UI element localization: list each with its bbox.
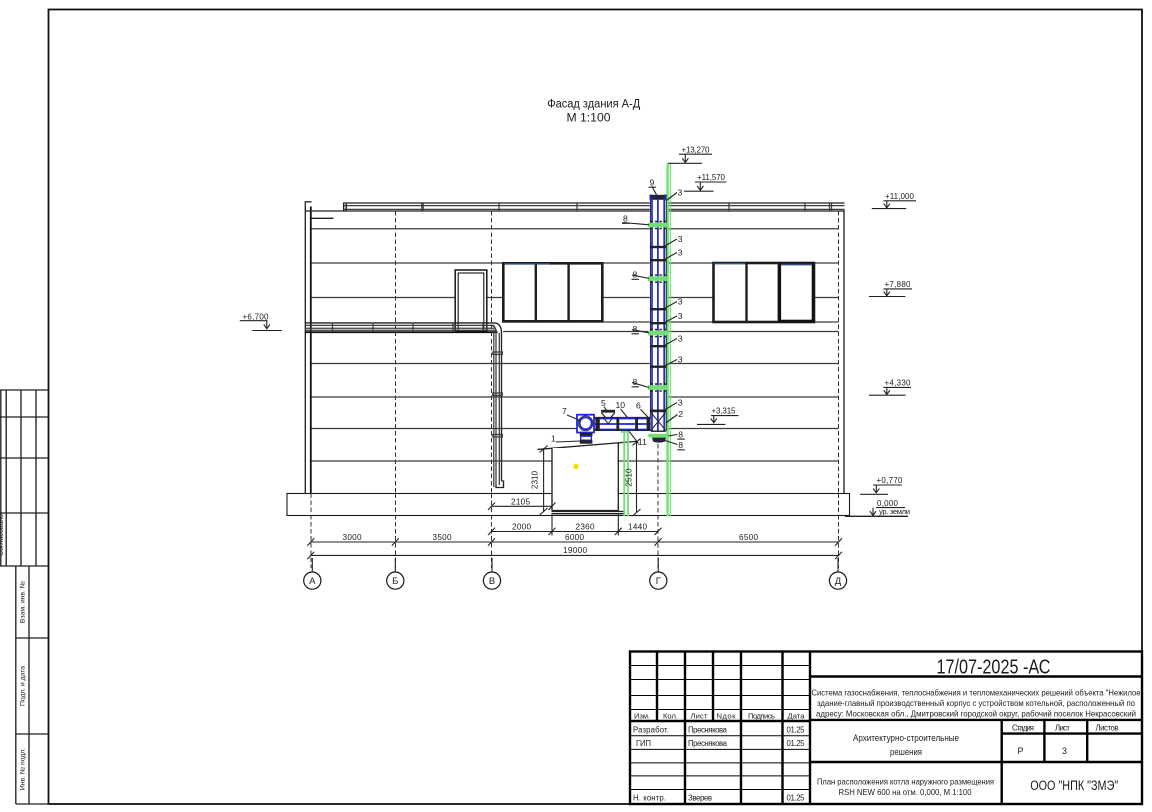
- svg-text:Листов: Листов: [1096, 724, 1119, 733]
- svg-text:Зверев: Зверев: [688, 794, 712, 803]
- svg-text:5: 5: [601, 398, 606, 408]
- svg-text:М 1:100: М 1:100: [567, 113, 611, 125]
- svg-text:3: 3: [678, 311, 683, 321]
- svg-text:Преснякова: Преснякова: [688, 739, 728, 748]
- svg-text:1440: 1440: [628, 523, 647, 532]
- svg-text:8: 8: [633, 324, 638, 334]
- svg-text:01.25: 01.25: [787, 739, 806, 748]
- svg-text:01.25: 01.25: [787, 726, 806, 735]
- svg-text:Н. контр.: Н. контр.: [633, 794, 666, 803]
- svg-text:Подпись: Подпись: [748, 712, 775, 721]
- svg-text:01.25: 01.25: [787, 794, 806, 803]
- svg-text:9: 9: [650, 178, 655, 188]
- svg-text:8: 8: [633, 377, 638, 387]
- svg-text:Архитектурно-строительные: Архитектурно-строительные: [853, 733, 959, 743]
- svg-text:Фасад здания А-Д: Фасад здания А-Д: [547, 99, 640, 111]
- svg-text:3: 3: [678, 334, 683, 344]
- svg-text:+11,000: +11,000: [885, 192, 915, 201]
- svg-text:Дата: Дата: [788, 712, 806, 721]
- svg-text:Лист: Лист: [691, 712, 709, 721]
- svg-text:8: 8: [678, 429, 683, 439]
- svg-text:Р: Р: [1017, 746, 1023, 756]
- svg-text:Согласовано: Согласовано: [0, 514, 5, 556]
- svg-text:Изм.: Изм.: [634, 712, 650, 721]
- svg-text:3: 3: [678, 355, 683, 365]
- svg-text:Б: Б: [392, 576, 398, 587]
- svg-text:Nдок: Nдок: [717, 712, 737, 721]
- svg-text:8: 8: [623, 214, 628, 224]
- svg-text:3: 3: [678, 188, 683, 198]
- svg-text:+3,315: +3,315: [712, 407, 737, 416]
- svg-text:Подп. и дата: Подп. и дата: [20, 666, 27, 706]
- svg-text:6500: 6500: [739, 533, 758, 542]
- svg-text:В: В: [489, 576, 495, 587]
- svg-text:+4,330: +4,330: [885, 378, 912, 387]
- svg-text:+0,770: +0,770: [877, 476, 904, 485]
- svg-text:ГИП: ГИП: [636, 739, 651, 748]
- svg-text:Инв. № подл.: Инв. № подл.: [20, 748, 27, 790]
- svg-text:ООО "НПК "ЗМЭ": ООО "НПК "ЗМЭ": [1030, 778, 1118, 793]
- svg-text:3: 3: [678, 234, 683, 244]
- svg-text:7: 7: [562, 406, 567, 416]
- svg-text:Кол.: Кол.: [663, 712, 678, 721]
- svg-text:решения: решения: [890, 747, 922, 757]
- svg-text:2360: 2360: [576, 523, 595, 532]
- svg-text:3: 3: [678, 248, 683, 258]
- svg-text:здание-главный производственны: здание-главный производственный корпус с…: [817, 698, 1135, 708]
- svg-text:+11,570: +11,570: [697, 173, 726, 182]
- svg-text:11: 11: [638, 437, 647, 447]
- svg-text:2000: 2000: [512, 523, 531, 532]
- svg-text:17/07-2025 -АС: 17/07-2025 -АС: [937, 656, 1051, 678]
- svg-text:Г: Г: [656, 576, 661, 587]
- svg-text:Лист: Лист: [1055, 724, 1070, 733]
- svg-text:2510: 2510: [625, 468, 634, 487]
- svg-text:3000: 3000: [343, 533, 362, 542]
- svg-text:2105: 2105: [511, 498, 530, 507]
- svg-text:Система газоснабжения, теплосн: Система газоснабжения, теплоснабжения и …: [812, 687, 1141, 697]
- svg-text:6: 6: [636, 400, 641, 410]
- svg-text:3: 3: [1062, 746, 1067, 756]
- svg-text:6000: 6000: [565, 533, 584, 542]
- svg-text:10: 10: [616, 400, 626, 410]
- svg-text:2310: 2310: [530, 470, 539, 489]
- svg-text:1: 1: [551, 433, 556, 443]
- svg-text:Разработ.: Разработ.: [633, 726, 669, 735]
- svg-text:адресу: Московская обл., Дмитр: адресу: Московская обл., Дмитровский гор…: [816, 709, 1136, 719]
- svg-text:А: А: [309, 576, 316, 587]
- svg-text:Стадия: Стадия: [1012, 724, 1034, 733]
- svg-text:Д: Д: [835, 576, 842, 587]
- svg-text:8: 8: [633, 270, 638, 280]
- svg-text:+13,270: +13,270: [682, 145, 711, 154]
- svg-text:План расположения котла наружн: План расположения котла наружного размещ…: [817, 777, 994, 787]
- svg-text:+7,880: +7,880: [885, 280, 912, 289]
- svg-text:+6,700: +6,700: [243, 312, 270, 321]
- svg-text:Взам. инв. №: Взам. инв. №: [20, 581, 27, 623]
- svg-text:3: 3: [678, 297, 683, 307]
- svg-text:RSH NEW 600 на отм. 0,000, М: RSH NEW 600 на отм. 0,000, М 1:100: [839, 787, 972, 797]
- svg-text:3500: 3500: [433, 533, 452, 542]
- svg-text:ур. земли: ур. земли: [879, 507, 910, 516]
- svg-text:19000: 19000: [563, 546, 587, 555]
- svg-text:2: 2: [678, 409, 683, 419]
- svg-text:Преснякова: Преснякова: [688, 726, 728, 735]
- svg-text:8: 8: [678, 440, 683, 450]
- svg-text:3: 3: [678, 398, 683, 408]
